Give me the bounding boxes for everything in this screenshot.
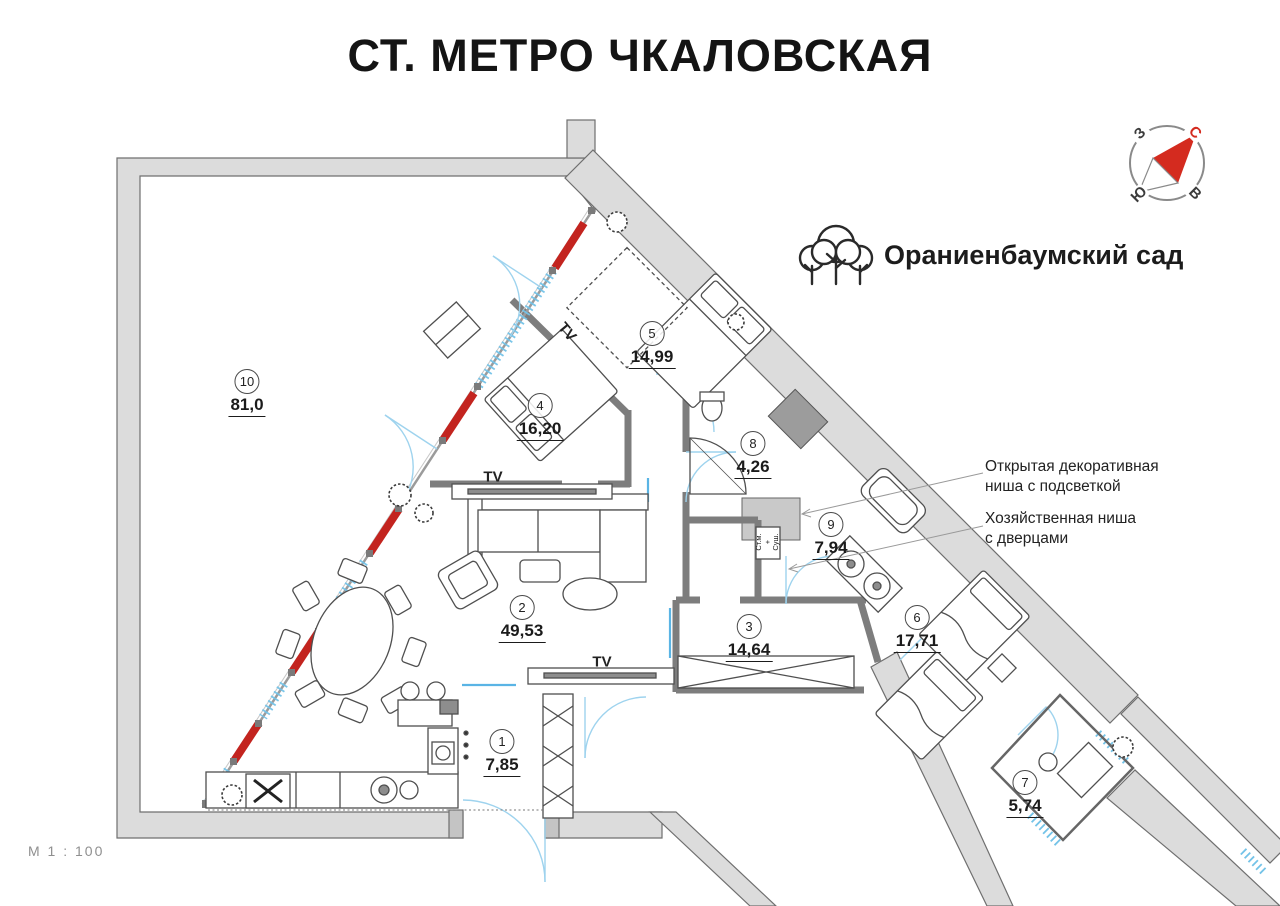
floor-plan-page: СТ. МЕТРО ЧКАЛОВСКАЯ Ораниенбаумский сад… — [0, 0, 1280, 906]
room-label-4: 4 16,20 — [517, 393, 564, 441]
sofa-room2 — [468, 494, 648, 582]
room-label-3: 3 14,64 — [726, 614, 773, 662]
wardrobe-hall — [543, 694, 573, 818]
page-title: СТ. МЕТРО ЧКАЛОВСКАЯ — [347, 30, 932, 82]
nightstand-room6 — [988, 654, 1016, 682]
coffee-table — [563, 578, 617, 610]
tv-console-top — [452, 484, 612, 499]
tv-label-room2-top: TV — [483, 469, 502, 486]
room-label-6: 6 17,71 — [894, 605, 941, 653]
room-label-5: 5 14,99 — [629, 321, 676, 369]
floor-plan-drawing — [0, 0, 1280, 906]
washer-dryer-label: Ст.м. + Суш. — [755, 533, 781, 550]
room-label-2: 2 49,53 — [499, 595, 546, 643]
wardrobe-room4 — [424, 302, 481, 358]
annotation-utility-niche: Хозяйственная ниша с дверцами — [985, 509, 1136, 549]
room-label-7: 7 5,74 — [1006, 770, 1043, 818]
annotation-decorative-niche: Открытая декоративная ниша с подсветкой — [985, 457, 1159, 497]
landmark-label: Ораниенбаумский сад — [884, 240, 1183, 271]
room-label-1: 1 7,85 — [483, 729, 520, 777]
armchair-room2 — [436, 549, 500, 611]
trees-icon — [800, 226, 872, 284]
room-label-8: 8 4,26 — [734, 431, 771, 479]
room-label-10: 10 81,0 — [228, 369, 265, 417]
room-label-9: 9 7,94 — [812, 512, 849, 560]
scale-note: М 1 : 100 — [28, 843, 104, 859]
tv-label-room2-bottom: TV — [592, 654, 611, 671]
